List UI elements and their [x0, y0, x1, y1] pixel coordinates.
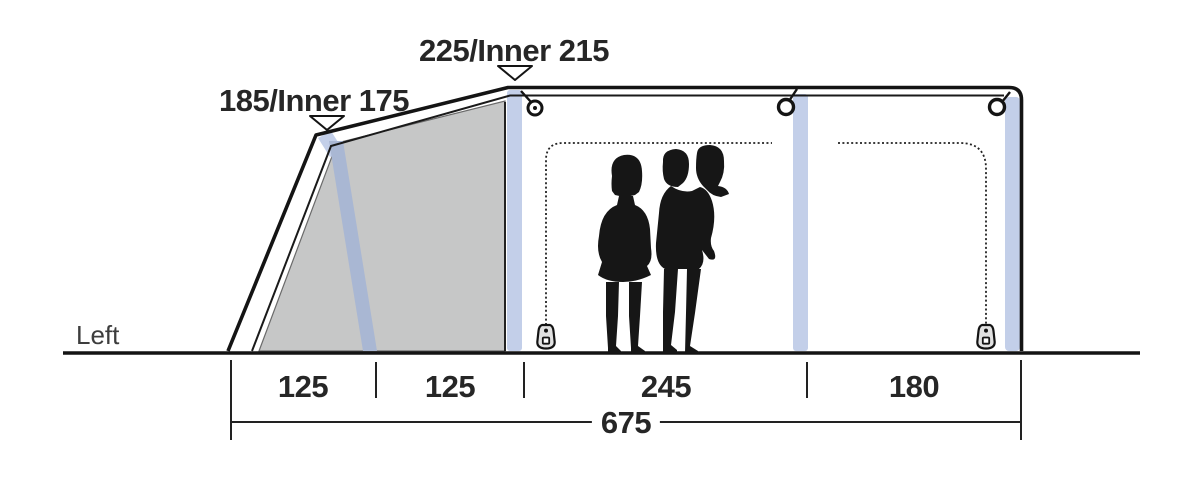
- height-label-peak: 225/Inner 215: [419, 33, 609, 69]
- dimension-segment-label-1: 125: [278, 369, 328, 405]
- front-side-panel: [259, 101, 505, 351]
- inner-door-dotted-right: [838, 143, 986, 325]
- tent-side-profile-diagram: 185/Inner 175 225/Inner 215 Left 125 125…: [0, 0, 1200, 482]
- air-pole-rear: [1005, 97, 1020, 351]
- air-pole-middle: [793, 94, 808, 351]
- people-silhouette: [598, 145, 729, 353]
- total-dimension-label: 675: [592, 405, 660, 441]
- dimension-segment-label-3: 245: [641, 369, 691, 405]
- side-label: Left: [76, 320, 119, 351]
- height-label-front: 185/Inner 175: [219, 83, 409, 119]
- zipper-pull-icon: [977, 325, 994, 349]
- dimension-segment-label-2: 125: [425, 369, 475, 405]
- zipper-pull-icon: [537, 325, 554, 349]
- air-pole-front: [507, 90, 522, 351]
- dimension-segment-label-4: 180: [889, 369, 939, 405]
- roof-rings: [521, 89, 1010, 115]
- air-poles: [507, 90, 1020, 351]
